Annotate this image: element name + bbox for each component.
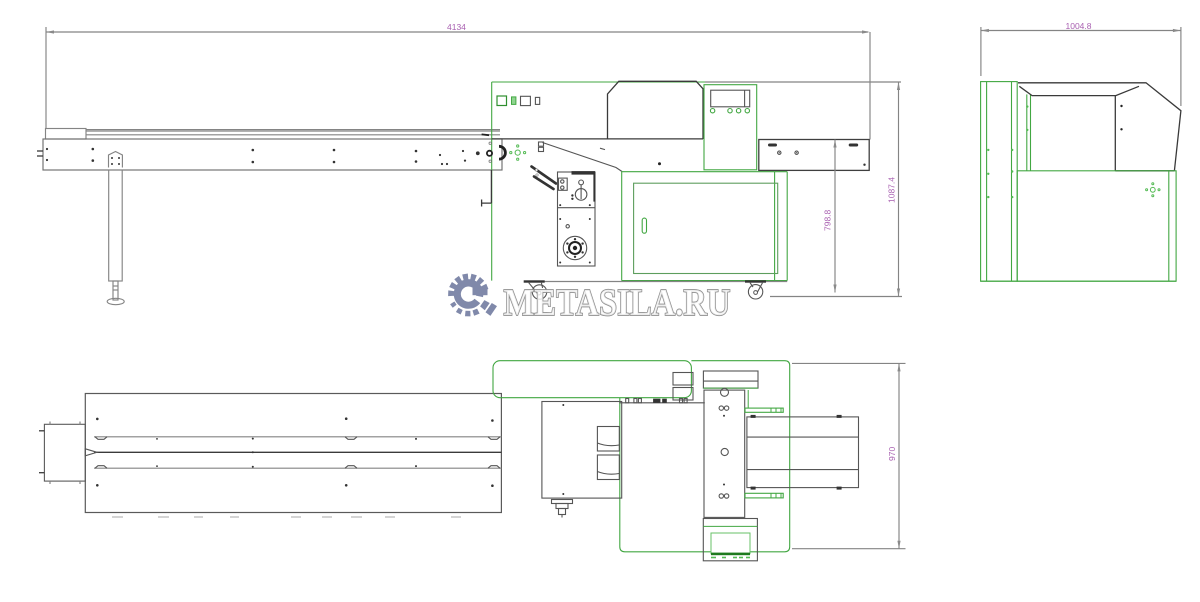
svg-text:METASILA.RU: METASILA.RU — [504, 282, 731, 324]
svg-text:798.8: 798.8 — [823, 209, 833, 231]
svg-text:1004.8: 1004.8 — [1066, 21, 1092, 31]
svg-text:970: 970 — [887, 447, 897, 461]
svg-text:4134: 4134 — [447, 22, 466, 32]
svg-text:1087.4: 1087.4 — [887, 177, 897, 203]
